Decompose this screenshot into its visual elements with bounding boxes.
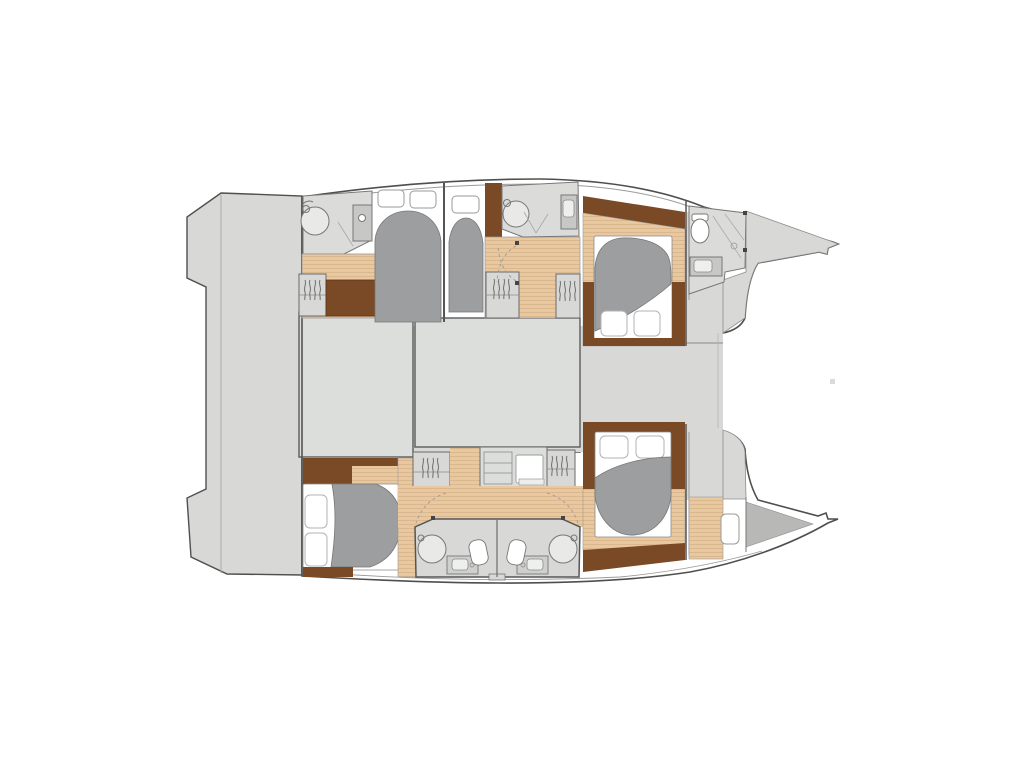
port-aft-bathroom	[301, 191, 372, 254]
saloon-block-forward	[415, 318, 580, 447]
forepeak-wood-floor	[689, 497, 723, 559]
starboard-bow-flare-deck	[723, 430, 746, 499]
floor-plan-page	[0, 0, 1024, 768]
double-bed-duvet	[375, 211, 441, 322]
forepeak-hatch	[721, 514, 739, 544]
saloon-block-aft	[299, 312, 413, 457]
bed-pillow	[305, 495, 327, 528]
door-post	[515, 281, 519, 285]
desk-tray	[519, 479, 544, 485]
door-post	[561, 516, 565, 520]
hull-window	[378, 190, 404, 207]
toilet-bowl	[691, 219, 709, 243]
chest-of-drawers	[326, 280, 378, 316]
aft-transom-platform	[187, 193, 302, 575]
bed-rail	[583, 282, 594, 346]
shower-tray	[301, 207, 329, 235]
starboard-twin-bathrooms	[415, 516, 580, 580]
port-forward-cabin	[583, 196, 689, 346]
port-mid-bathroom	[502, 182, 579, 237]
bed-pillow	[634, 311, 660, 336]
aft-platform-shape	[187, 193, 302, 575]
catamaran-floor-plan	[0, 0, 1024, 768]
sink-bowl	[359, 215, 366, 222]
sink-bowl	[527, 559, 543, 570]
bed-rail	[583, 338, 685, 346]
sink-cabinet	[353, 205, 372, 241]
wardrobe	[556, 274, 580, 318]
door-post	[743, 211, 747, 215]
door-post	[743, 248, 747, 252]
shower-tray	[549, 535, 577, 563]
door-post	[431, 516, 435, 520]
hull-window	[452, 196, 479, 213]
footboard-strip	[303, 567, 353, 577]
sink-bowl	[563, 200, 574, 217]
shower-tray	[418, 535, 446, 563]
bed-pillow	[636, 436, 664, 458]
corridor-wood-floor	[450, 448, 480, 488]
bed-pillow	[600, 436, 628, 458]
cabinet-block	[485, 183, 502, 237]
stray-dot	[830, 379, 835, 384]
door-post	[515, 241, 519, 245]
bed-rail	[583, 422, 685, 432]
single-bed-duvet	[449, 218, 483, 312]
sink-bowl	[452, 559, 468, 570]
starboard-forward-cabin	[583, 422, 689, 572]
hull-window	[410, 191, 436, 208]
bed-rail	[672, 282, 685, 346]
bed-rail	[583, 432, 595, 489]
bed-rail	[671, 432, 685, 489]
bed-pillow	[601, 311, 627, 336]
sink-bowl	[694, 260, 712, 272]
bed-pillow	[305, 533, 327, 566]
